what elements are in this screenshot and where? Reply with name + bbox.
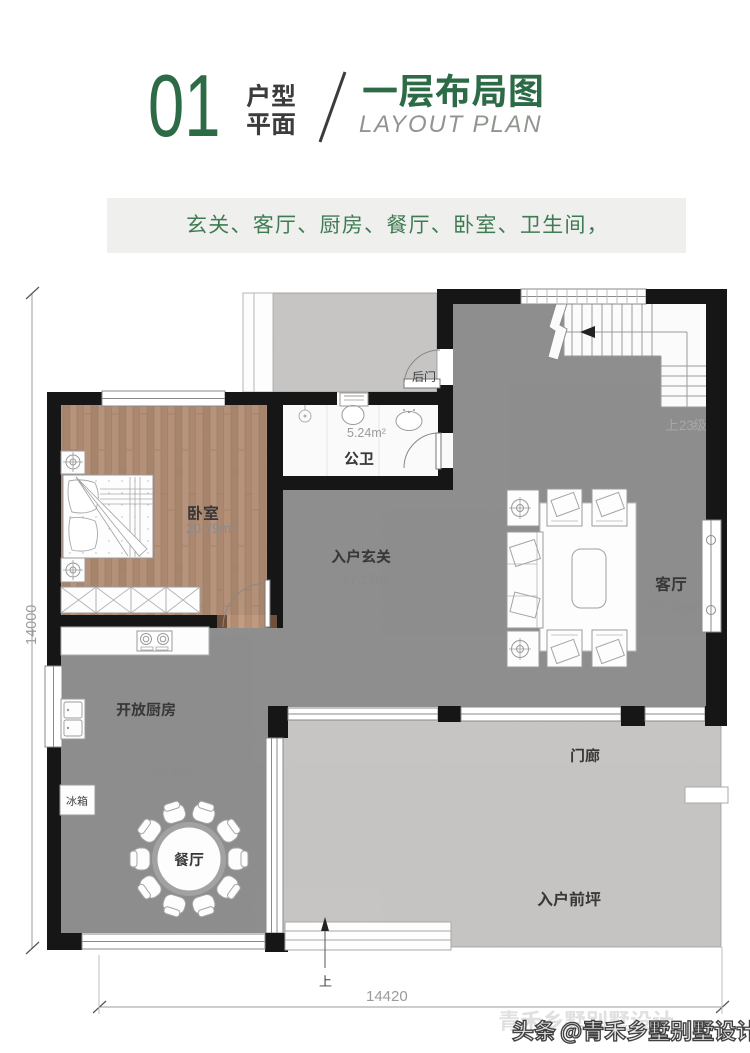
svg-text:17.13m²: 17.13m² <box>342 572 392 587</box>
svg-text:LAYOUT PLAN: LAYOUT PLAN <box>359 111 542 138</box>
svg-text:5.24m²: 5.24m² <box>347 426 386 440</box>
svg-text:01: 01 <box>148 58 220 156</box>
svg-text:30.8m²: 30.8m² <box>151 763 194 778</box>
svg-text:20.79m²: 20.79m² <box>186 521 236 536</box>
svg-text:37.48m²: 37.48m² <box>650 600 700 615</box>
svg-text:14000: 14000 <box>24 605 40 645</box>
svg-text:23: 23 <box>679 418 694 433</box>
svg-text:14420: 14420 <box>366 988 408 1005</box>
